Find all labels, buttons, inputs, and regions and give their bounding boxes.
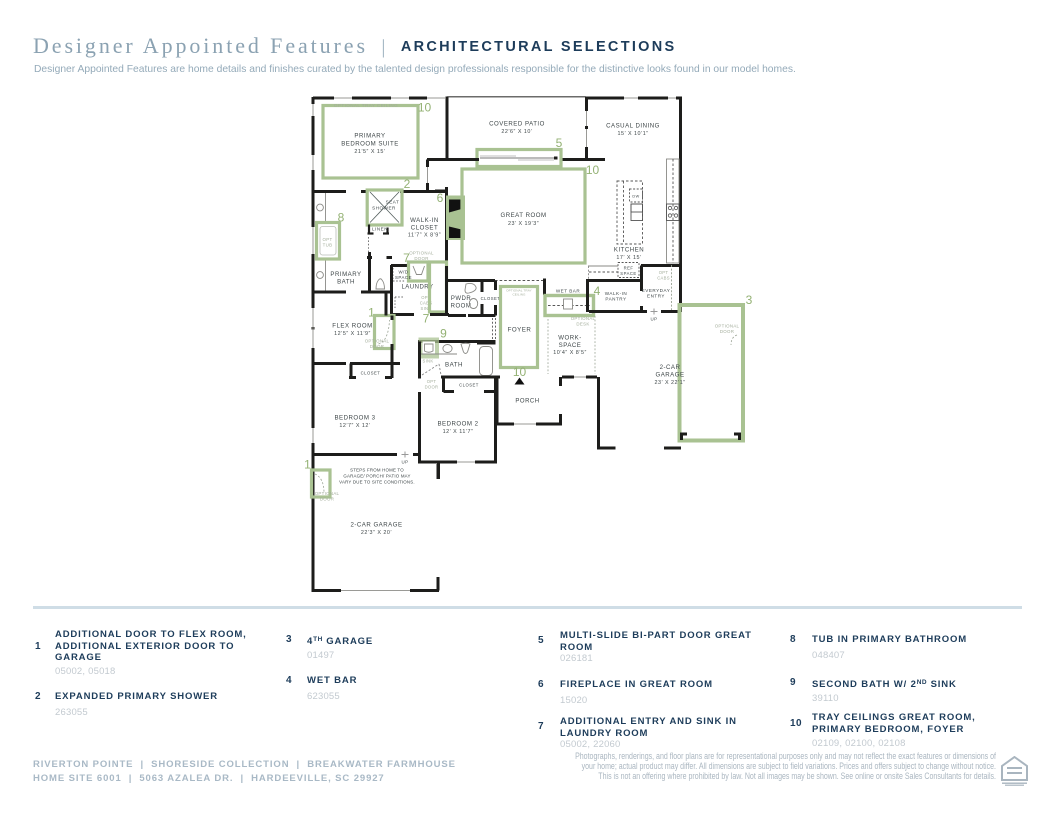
svg-text:SPACE: SPACE xyxy=(395,275,412,280)
svg-text:UP: UP xyxy=(650,317,657,322)
svg-text:CLOSET: CLOSET xyxy=(361,371,381,376)
svg-text:10: 10 xyxy=(418,101,432,115)
svg-text:DOOR: DOOR xyxy=(414,256,428,261)
svg-text:FOYER: FOYER xyxy=(508,327,532,334)
svg-text:DOOR: DOOR xyxy=(320,497,334,502)
svg-text:CEILING: CEILING xyxy=(512,293,526,297)
svg-text:EVERYDAY: EVERYDAY xyxy=(642,288,671,293)
svg-text:OPT: OPT xyxy=(323,237,333,242)
svg-text:17’ X 15’: 17’ X 15’ xyxy=(616,255,641,261)
svg-text:OPT: OPT xyxy=(659,270,669,275)
svg-text:CLOSET: CLOSET xyxy=(411,225,438,232)
svg-text:OPTIONAL: OPTIONAL xyxy=(715,324,740,329)
svg-text:DOOR: DOOR xyxy=(720,329,734,334)
svg-text:3: 3 xyxy=(746,293,753,307)
svg-text:SEAT: SEAT xyxy=(386,200,400,205)
svg-text:DW: DW xyxy=(632,195,639,199)
svg-text:22’6” X 10’: 22’6” X 10’ xyxy=(501,129,532,135)
svg-text:BATH: BATH xyxy=(337,279,355,286)
svg-text:OPTIONAL TRAY CEILING: OPTIONAL TRAY CEILING xyxy=(334,103,398,108)
svg-text:CLOSET: CLOSET xyxy=(459,383,479,388)
svg-text:21’5” X 15’: 21’5” X 15’ xyxy=(354,149,385,155)
svg-text:12’5” X 11’9”: 12’5” X 11’9” xyxy=(334,331,371,337)
svg-text:STEPS FROM HOME TO: STEPS FROM HOME TO xyxy=(350,468,404,473)
svg-text:SPACE: SPACE xyxy=(620,271,636,276)
svg-text:CLOSET: CLOSET xyxy=(481,296,501,301)
svg-text:OPTIONAL: OPTIONAL xyxy=(315,491,340,496)
svg-text:BEDROOM SUITE: BEDROOM SUITE xyxy=(341,141,399,148)
svg-text:23’ X 19’3”: 23’ X 19’3” xyxy=(508,221,539,227)
svg-text:2: 2 xyxy=(404,177,411,191)
svg-text:DESK: DESK xyxy=(576,322,589,327)
svg-text:WET BAR: WET BAR xyxy=(556,289,581,294)
svg-text:GARAGE: GARAGE xyxy=(655,372,684,379)
svg-text:DOOR: DOOR xyxy=(425,385,439,390)
svg-text:BATH: BATH xyxy=(445,362,463,369)
svg-text:9: 9 xyxy=(440,327,447,341)
svg-text:6: 6 xyxy=(437,191,444,205)
svg-text:15’ X 10’1”: 15’ X 10’1” xyxy=(617,131,648,137)
svg-text:23’ X 22’1”: 23’ X 22’1” xyxy=(654,380,685,386)
svg-text:OPTIONAL: OPTIONAL xyxy=(571,316,596,321)
svg-text:10: 10 xyxy=(586,163,600,177)
svg-text:10: 10 xyxy=(513,365,527,379)
svg-text:2-CAR GARAGE: 2-CAR GARAGE xyxy=(350,522,402,529)
svg-text:BEDROOM 3: BEDROOM 3 xyxy=(334,415,375,422)
svg-text:12’ X 11’7”: 12’ X 11’7” xyxy=(443,429,474,435)
svg-text:FLEX ROOM: FLEX ROOM xyxy=(332,323,372,330)
svg-text:12’7” X 12’: 12’7” X 12’ xyxy=(339,423,370,429)
svg-text:PRIMARY: PRIMARY xyxy=(330,271,361,278)
svg-text:BEDROOM 2: BEDROOM 2 xyxy=(437,421,478,428)
svg-text:UP: UP xyxy=(401,460,408,465)
svg-text:REF: REF xyxy=(624,266,634,271)
svg-text:WALK-IN: WALK-IN xyxy=(410,217,439,224)
svg-text:OPTIONAL: OPTIONAL xyxy=(409,251,434,256)
svg-text:KITCHEN: KITCHEN xyxy=(614,247,644,254)
svg-text:5: 5 xyxy=(556,136,563,150)
svg-text:SPACE: SPACE xyxy=(559,342,582,349)
svg-text:2-CAR: 2-CAR xyxy=(660,364,681,371)
svg-text:11’7” X 8’9”: 11’7” X 8’9” xyxy=(408,233,441,239)
svg-text:CABS: CABS xyxy=(657,276,670,281)
svg-text:7: 7 xyxy=(423,312,430,326)
svg-text:OPTIONAL: OPTIONAL xyxy=(365,339,390,344)
svg-text:PWDR: PWDR xyxy=(451,296,471,302)
svg-text:10’4” X 8’5”: 10’4” X 8’5” xyxy=(553,350,587,356)
svg-text:ENTRY: ENTRY xyxy=(647,294,665,299)
svg-text:PANTRY: PANTRY xyxy=(605,297,626,302)
svg-text:COVERED PATIO: COVERED PATIO xyxy=(489,121,545,128)
svg-text:WORK-: WORK- xyxy=(558,335,582,342)
svg-text:SHOWER: SHOWER xyxy=(372,206,396,211)
svg-text:WALK-IN: WALK-IN xyxy=(605,291,627,296)
svg-text:GREAT ROOM: GREAT ROOM xyxy=(500,212,546,219)
svg-text:TUB: TUB xyxy=(323,243,333,248)
svg-text:SINK: SINK xyxy=(423,359,434,364)
svg-text:CASUAL DINING: CASUAL DINING xyxy=(606,123,660,130)
svg-text:PORCH: PORCH xyxy=(515,399,539,405)
svg-text:OPT: OPT xyxy=(427,379,437,384)
svg-text:VARY DUE TO SITE CONDITIONS.: VARY DUE TO SITE CONDITIONS. xyxy=(339,480,415,485)
svg-text:W/D: W/D xyxy=(398,270,408,275)
svg-text:22’3” X 20’: 22’3” X 20’ xyxy=(361,530,392,536)
svg-text:PRIMARY: PRIMARY xyxy=(354,133,385,140)
svg-text:LINEN: LINEN xyxy=(372,227,388,232)
svg-text:DOOR: DOOR xyxy=(370,344,384,349)
svg-text:GARAGE/ PORCH/ PATIO MAY: GARAGE/ PORCH/ PATIO MAY xyxy=(343,474,410,479)
svg-text:ROOM: ROOM xyxy=(451,304,472,310)
